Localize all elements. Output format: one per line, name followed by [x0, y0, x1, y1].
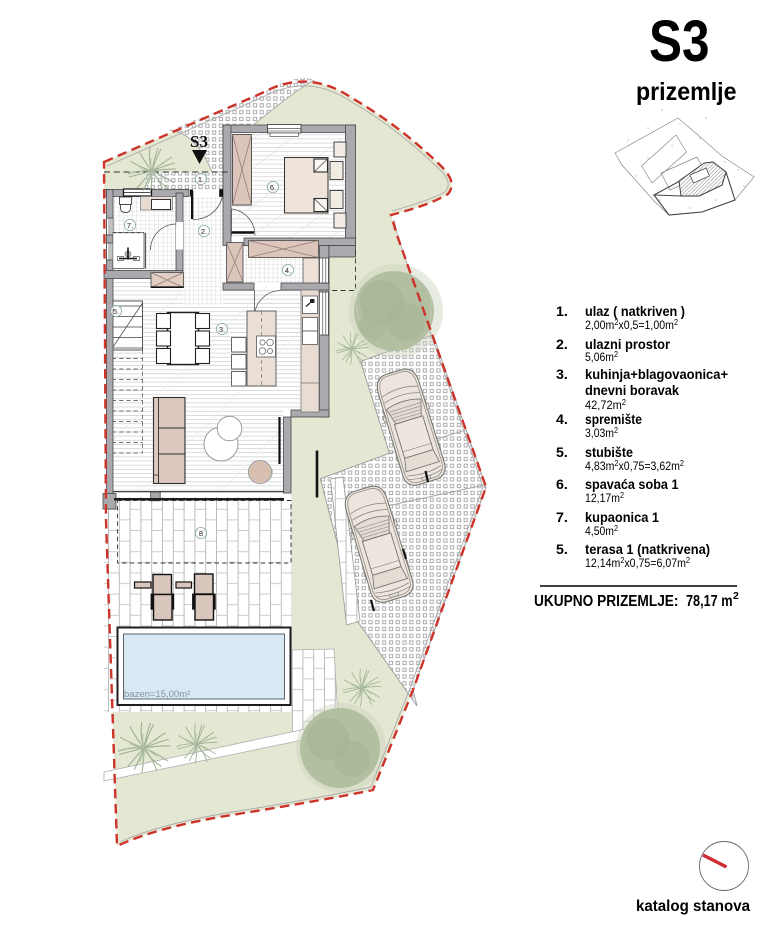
- svg-text:2.: 2.: [201, 227, 207, 236]
- svg-text:3.: 3.: [219, 325, 225, 334]
- svg-text:12,14m2x0,75=6,07m2: 12,14m2x0,75=6,07m2: [585, 556, 690, 570]
- svg-text:5.: 5.: [556, 445, 568, 461]
- svg-text:1.: 1.: [198, 175, 204, 184]
- svg-text:spavaća soba 1: spavaća soba 1: [585, 477, 679, 493]
- svg-text:stubište: stubište: [585, 445, 633, 461]
- svg-text:6.: 6.: [556, 477, 568, 493]
- svg-text:6.: 6.: [270, 183, 276, 192]
- svg-text:5,06m2: 5,06m2: [585, 350, 618, 364]
- svg-text:2.: 2.: [556, 337, 568, 353]
- svg-text:kuhinja+blagovaonica+: kuhinja+blagovaonica+: [585, 367, 728, 383]
- svg-text:bazen=15,00m²: bazen=15,00m²: [124, 689, 190, 700]
- svg-text:7.: 7.: [127, 221, 133, 230]
- svg-text:78,17 m: 78,17 m: [686, 593, 733, 610]
- svg-text:7.: 7.: [556, 510, 568, 526]
- svg-text:8: 8: [199, 529, 203, 538]
- svg-text:UKUPNO PRIZEMLJE:: UKUPNO PRIZEMLJE:: [534, 593, 679, 610]
- svg-text:2,00m2x0,5=1,00m2: 2,00m2x0,5=1,00m2: [585, 318, 678, 332]
- svg-text:4,83m2x0,75=3,62m2: 4,83m2x0,75=3,62m2: [585, 459, 684, 473]
- svg-text:prizemlje: prizemlje: [636, 78, 737, 106]
- svg-text:katalog stanova: katalog stanova: [636, 898, 750, 915]
- svg-text:S3: S3: [649, 9, 710, 74]
- svg-text:12,17m2: 12,17m2: [585, 491, 624, 505]
- svg-text:5.: 5.: [556, 542, 568, 558]
- svg-text:kupaonica 1: kupaonica 1: [585, 510, 659, 526]
- svg-text:4.: 4.: [285, 266, 291, 275]
- svg-text:4.: 4.: [556, 412, 568, 428]
- svg-text:1.: 1.: [556, 304, 568, 320]
- svg-text:ulaz ( natkriven ): ulaz ( natkriven ): [585, 304, 685, 320]
- svg-text:42,72m2: 42,72m2: [585, 398, 627, 412]
- svg-text:3.: 3.: [556, 367, 568, 383]
- svg-text:3,03m2: 3,03m2: [585, 426, 618, 440]
- svg-text:S3: S3: [190, 132, 208, 151]
- svg-text:2: 2: [733, 590, 739, 602]
- svg-text:4,50m2: 4,50m2: [585, 524, 618, 538]
- svg-text:5.: 5.: [113, 307, 119, 316]
- svg-text:terasa 1 (natkrivena): terasa 1 (natkrivena): [585, 542, 710, 558]
- svg-text:dnevni boravak: dnevni boravak: [585, 383, 679, 399]
